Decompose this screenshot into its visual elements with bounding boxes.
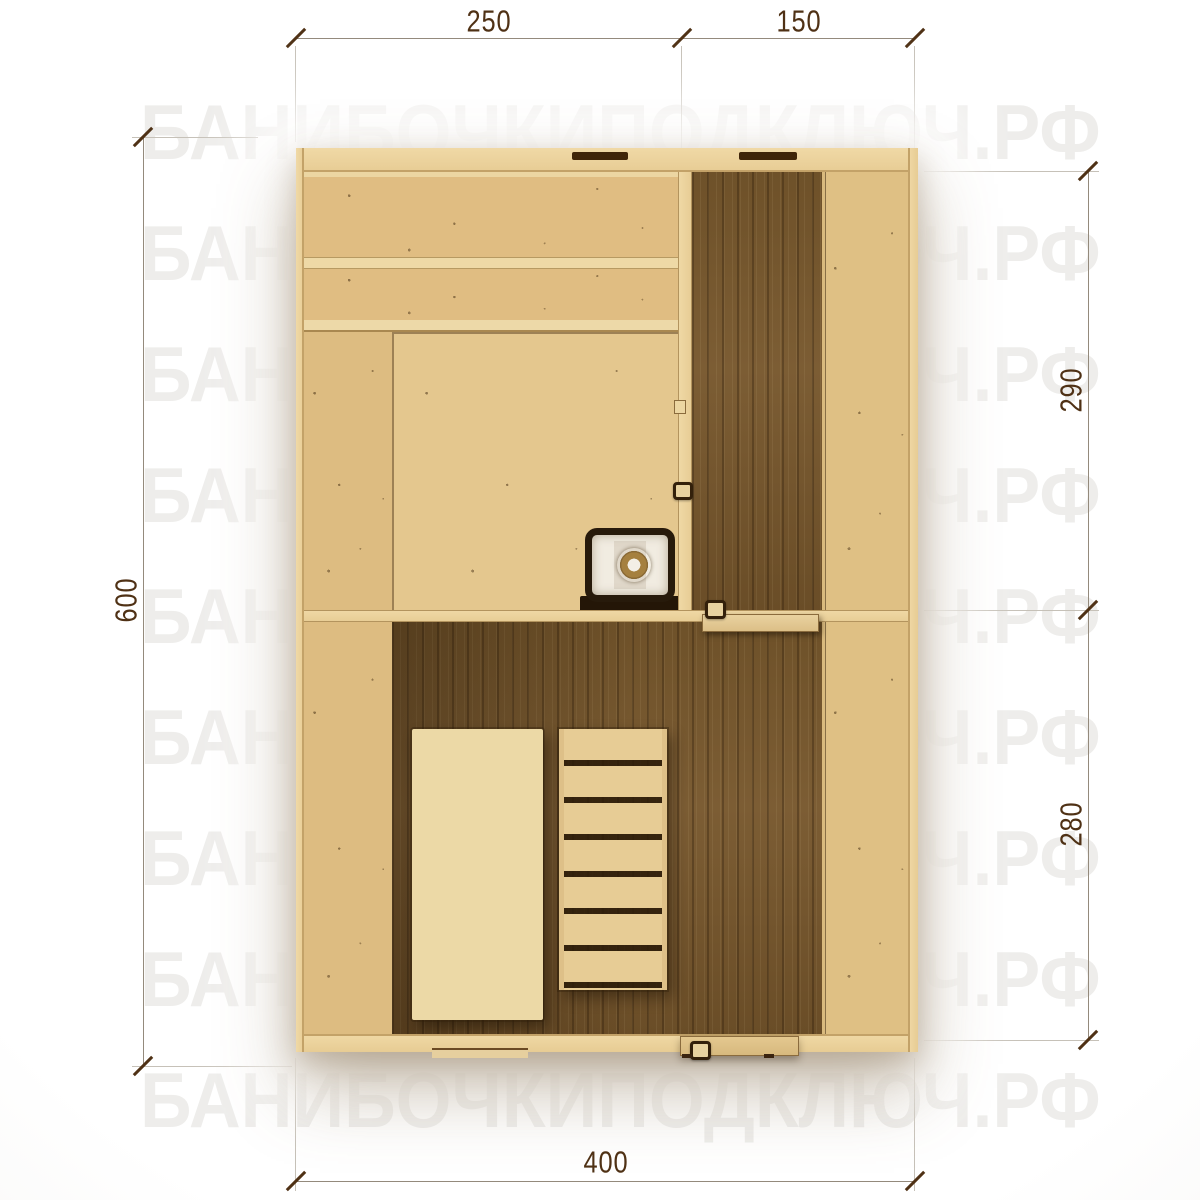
stove-chimney-ring-icon bbox=[617, 548, 651, 582]
right-bench-bottom bbox=[822, 622, 911, 1034]
dimension-label-top-right: 150 bbox=[777, 6, 822, 37]
steam-room-upper-tier-bench bbox=[304, 172, 680, 262]
partition-wall-vertical bbox=[678, 172, 692, 622]
door-jamb bbox=[674, 400, 686, 414]
bench-front-edge bbox=[304, 320, 680, 332]
wall-right bbox=[908, 148, 918, 1052]
door-hinge-mark bbox=[682, 1054, 692, 1058]
extension-line bbox=[924, 1040, 1099, 1041]
steam-room-side-bench bbox=[304, 332, 392, 610]
wall-left bbox=[296, 148, 304, 1052]
table bbox=[412, 729, 543, 1020]
roof-vent bbox=[739, 152, 797, 160]
slatted-bench bbox=[559, 729, 667, 990]
extension-line bbox=[132, 1066, 292, 1067]
dimension-line-bottom bbox=[296, 1181, 916, 1182]
steam-room-door-handle bbox=[673, 482, 693, 500]
floor-plan bbox=[296, 148, 918, 1052]
dimension-label-left: 600 bbox=[111, 578, 142, 623]
extension-line bbox=[914, 1058, 915, 1191]
dimension-label-bottom: 400 bbox=[584, 1147, 629, 1178]
hallway-floor bbox=[692, 172, 822, 610]
render-area: БАНИБОЧКИПОДКЛЮЧ.РФ БАНИБОЧКИПОДКЛЮЧ.РФ … bbox=[0, 0, 1200, 1200]
extension-line bbox=[295, 1058, 296, 1191]
extension-line bbox=[914, 46, 915, 158]
threshold-step bbox=[432, 1048, 528, 1058]
dimension-label-top-left: 250 bbox=[467, 6, 512, 37]
dimension-label-right-lower: 280 bbox=[1056, 802, 1087, 847]
dimension-label-right-upper: 290 bbox=[1056, 368, 1087, 413]
watermark-text: БАНИБОЧКИПОДКЛЮЧ.РФ bbox=[140, 1061, 1101, 1139]
bench-tier-divider bbox=[304, 257, 680, 269]
rest-room-side-bench bbox=[304, 622, 392, 1034]
hall-door-handle bbox=[705, 600, 726, 619]
roof-vent bbox=[572, 152, 628, 160]
extension-line bbox=[132, 137, 258, 138]
entry-door-handle bbox=[690, 1041, 711, 1060]
dimension-line-top bbox=[296, 38, 916, 39]
steam-room-lower-tier-bench bbox=[304, 269, 680, 320]
extension-line bbox=[924, 610, 1099, 611]
extension-line bbox=[924, 171, 1099, 172]
right-bench-top bbox=[822, 172, 911, 610]
wall-bottom bbox=[296, 1034, 918, 1052]
sauna-stove bbox=[585, 528, 675, 602]
door-hinge-mark bbox=[764, 1054, 774, 1058]
extension-line bbox=[295, 46, 296, 142]
